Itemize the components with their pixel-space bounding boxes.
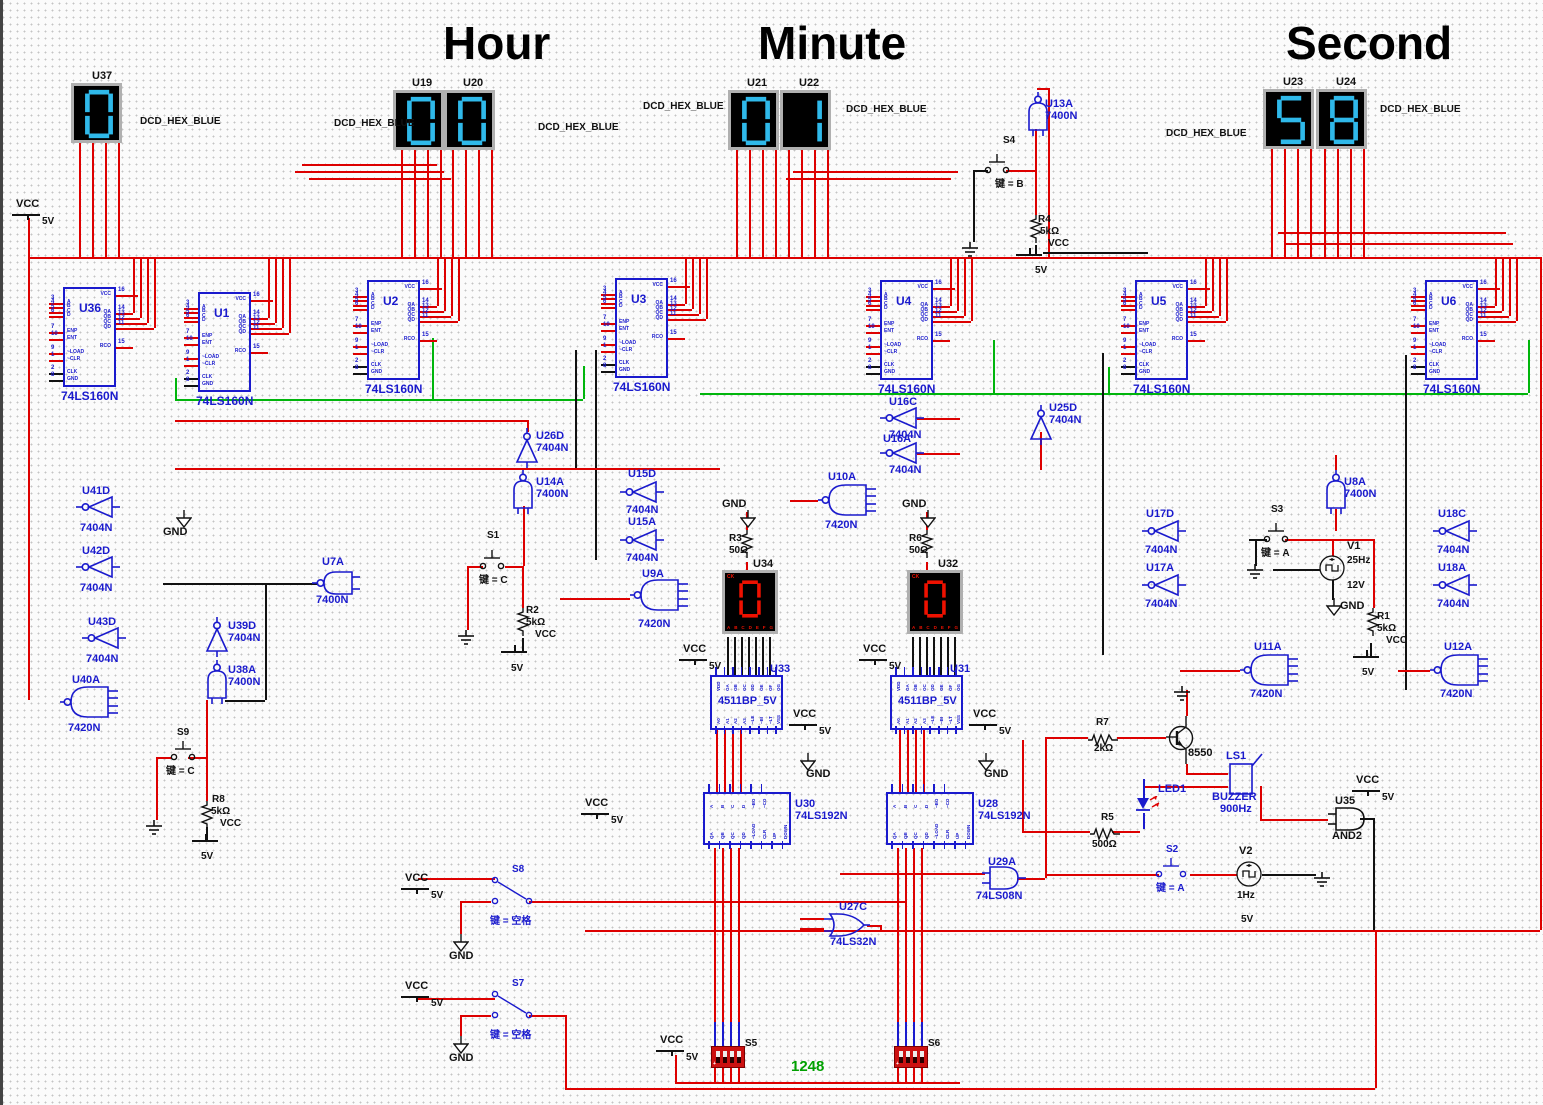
clock-source-V2[interactable] bbox=[1236, 861, 1262, 892]
gate-part-U7A: 7400N bbox=[316, 594, 348, 606]
wire bbox=[1324, 149, 1326, 257]
wire bbox=[1375, 930, 1377, 1088]
wire bbox=[912, 841, 914, 849]
wire bbox=[1373, 818, 1375, 930]
wire bbox=[727, 637, 729, 675]
wire bbox=[905, 848, 907, 1022]
resistor-label-R4: VCC bbox=[1048, 238, 1069, 249]
pin-number: 15 bbox=[1190, 332, 1197, 338]
wire bbox=[418, 998, 495, 1000]
wire bbox=[401, 150, 403, 257]
pin-label: ~CLR bbox=[619, 347, 632, 353]
pin-label: B bbox=[903, 805, 908, 808]
pin-label: QD bbox=[91, 324, 111, 330]
wire bbox=[265, 583, 267, 700]
wire bbox=[79, 143, 81, 257]
pin-label: ~LOAD bbox=[67, 349, 84, 355]
display-caption-3: DCD_HEX_BLUE bbox=[643, 101, 724, 112]
pin-label: GND bbox=[1139, 369, 1150, 375]
wire bbox=[950, 257, 952, 306]
pin-label: CLK bbox=[884, 362, 894, 368]
pin-number: 2 bbox=[868, 358, 871, 364]
resistor-label-R1: R1 bbox=[1377, 611, 1390, 622]
wire bbox=[741, 726, 743, 734]
wire bbox=[414, 150, 416, 257]
wire bbox=[251, 352, 268, 354]
wire bbox=[1335, 455, 1337, 470]
wire bbox=[416, 888, 418, 894]
pin-label: VCC bbox=[226, 296, 246, 302]
wire bbox=[902, 841, 904, 849]
wire bbox=[1367, 790, 1369, 796]
pin-label: GND bbox=[371, 369, 382, 375]
wire bbox=[775, 726, 777, 734]
pin-label: ENP bbox=[1429, 321, 1439, 327]
wire bbox=[984, 724, 986, 730]
wire bbox=[401, 996, 429, 998]
source-volt-V1: 12V bbox=[1347, 580, 1365, 591]
wire bbox=[915, 730, 917, 792]
resistor-label-R1: 5kΩ bbox=[1377, 623, 1396, 634]
wire bbox=[755, 637, 757, 675]
wire bbox=[762, 637, 764, 675]
wire bbox=[1350, 149, 1352, 257]
resistor-label-R8: R8 bbox=[212, 794, 225, 805]
chip-ref-U31: U31 bbox=[950, 663, 970, 675]
pin-label: GND bbox=[1429, 369, 1440, 375]
pin-label: RCO bbox=[1453, 336, 1473, 342]
gate-part-U25D: 7404N bbox=[1049, 414, 1081, 426]
gate-U11A[interactable] bbox=[1240, 653, 1298, 692]
wire bbox=[184, 321, 198, 323]
chip-part-U36: 74LS160N bbox=[61, 389, 118, 403]
gate-U41D[interactable] bbox=[76, 495, 120, 524]
wire bbox=[907, 730, 909, 792]
updown-counter-chip-U28[interactable] bbox=[886, 792, 974, 845]
gate-U38A[interactable] bbox=[205, 660, 229, 709]
wire bbox=[874, 659, 876, 665]
v5-label: 5V bbox=[819, 726, 831, 737]
gate-ref-U11A: U11A bbox=[1254, 641, 1282, 653]
earth-ground-symbol[interactable] bbox=[1245, 564, 1265, 585]
wire bbox=[944, 784, 946, 792]
wire bbox=[444, 257, 446, 311]
wire bbox=[1180, 670, 1240, 672]
wire bbox=[92, 143, 94, 257]
wire bbox=[904, 667, 906, 675]
gate-ref-U12A: U12A bbox=[1444, 641, 1472, 653]
gate-part-U26D: 7404N bbox=[536, 442, 568, 454]
resistor-label-R6: 50Ω bbox=[909, 545, 928, 556]
pin-number: 15 bbox=[935, 332, 942, 338]
wire bbox=[897, 1022, 899, 1046]
seven-segment-display-U23[interactable] bbox=[1263, 89, 1314, 149]
wire bbox=[730, 848, 732, 1022]
wire bbox=[12, 214, 40, 216]
pin-label: CLK bbox=[67, 369, 77, 375]
wire bbox=[1016, 254, 1042, 256]
pin-label: D bbox=[371, 305, 375, 311]
wire bbox=[437, 257, 439, 306]
wire bbox=[923, 730, 925, 792]
pin-label: OB bbox=[913, 684, 918, 691]
gate-part-U38A: 7400N bbox=[228, 676, 260, 688]
wire bbox=[940, 637, 942, 675]
pin-number: 2 bbox=[1123, 358, 1126, 364]
wire bbox=[923, 841, 925, 849]
pin-label: OB bbox=[733, 684, 738, 691]
pin-label: QC bbox=[730, 832, 735, 839]
wire bbox=[418, 878, 495, 880]
gate-U9A[interactable] bbox=[630, 578, 688, 617]
wire bbox=[789, 724, 817, 726]
wire bbox=[275, 257, 277, 323]
wire bbox=[116, 347, 133, 349]
gate-part-U41D: 7404N bbox=[80, 522, 112, 534]
pin-label: A3 bbox=[742, 718, 747, 724]
wire bbox=[1363, 149, 1365, 257]
seven-segment-display-U21[interactable] bbox=[728, 90, 779, 150]
switch-S7[interactable] bbox=[491, 990, 535, 1025]
vcc-symbol: VCC bbox=[1356, 774, 1379, 786]
wire bbox=[1188, 288, 1210, 290]
wire bbox=[933, 784, 935, 792]
wire bbox=[192, 840, 218, 842]
v5-label: 5V bbox=[1382, 792, 1394, 803]
resistor-label-R6: R6 bbox=[909, 533, 922, 544]
resistor-label-R8: 5kΩ bbox=[211, 806, 230, 817]
v5-label: 5V bbox=[686, 1052, 698, 1063]
gate-part-U8A: 7400N bbox=[1344, 488, 1376, 500]
vcc-symbol: VCC bbox=[793, 708, 816, 720]
pin-number: 8 bbox=[186, 377, 189, 383]
transistor-8550[interactable] bbox=[1166, 712, 1200, 771]
wire bbox=[929, 667, 931, 675]
wire bbox=[913, 1022, 915, 1046]
wire bbox=[1029, 248, 1031, 254]
gate-ref-U14A: U14A bbox=[536, 476, 564, 488]
display-ref-U23: U23 bbox=[1283, 76, 1303, 88]
wire bbox=[955, 726, 957, 734]
wire bbox=[1262, 874, 1316, 876]
gate-part-U39D: 7404N bbox=[228, 632, 260, 644]
switch-ref-S5: S5 bbox=[745, 1038, 757, 1049]
pin-label: ~LOAD bbox=[934, 824, 939, 839]
gate-ref-U15D: U15D bbox=[628, 468, 656, 480]
wire bbox=[749, 726, 751, 734]
pin-label: OD bbox=[930, 684, 935, 691]
gate-U40A[interactable] bbox=[60, 685, 118, 724]
wire bbox=[184, 344, 198, 346]
pin-label: OC bbox=[922, 684, 927, 691]
pin-label: CLK bbox=[1139, 362, 1149, 368]
pin-number: 8 bbox=[51, 372, 54, 378]
wire bbox=[740, 784, 742, 792]
wire bbox=[706, 257, 708, 319]
wire bbox=[460, 1015, 491, 1017]
wire bbox=[401, 888, 429, 890]
wire bbox=[1121, 309, 1135, 311]
wire bbox=[282, 257, 284, 328]
wire bbox=[522, 566, 524, 608]
pin-label: A0 bbox=[716, 718, 721, 724]
wire bbox=[1509, 257, 1511, 316]
chip-ref-U28: U28 bbox=[978, 798, 998, 810]
pin-label: ~BI bbox=[759, 717, 764, 724]
pin-number: 9 bbox=[868, 338, 871, 344]
wire bbox=[866, 332, 880, 334]
dip-switch-S5[interactable]: + bbox=[711, 1046, 745, 1068]
switch-key-S2: 键 = A bbox=[1156, 879, 1185, 894]
pin-number: 15 bbox=[1480, 332, 1487, 338]
clock-source-V1[interactable] bbox=[1319, 555, 1345, 586]
pin-number: 10 bbox=[1123, 324, 1130, 330]
wire bbox=[736, 150, 738, 257]
wire bbox=[353, 353, 367, 355]
wire bbox=[750, 841, 752, 849]
pin-label: A bbox=[892, 805, 897, 808]
pin-label: D bbox=[884, 305, 888, 311]
wire bbox=[788, 150, 790, 257]
wire bbox=[478, 150, 480, 257]
seven-segment-display-U37[interactable] bbox=[71, 83, 122, 143]
wire bbox=[921, 1022, 923, 1046]
pin-number: 7 bbox=[868, 317, 871, 323]
wire bbox=[679, 659, 707, 661]
earth-ground-symbol[interactable] bbox=[960, 242, 980, 263]
gate-ref-U8A: U8A bbox=[1344, 476, 1366, 488]
wire bbox=[1528, 340, 1530, 393]
wire bbox=[501, 651, 527, 653]
gate-U10A[interactable] bbox=[818, 483, 876, 522]
wire bbox=[116, 295, 138, 297]
pin-label: ENT bbox=[371, 328, 381, 334]
switch-key-S8: 键 = 空格 bbox=[490, 912, 531, 927]
pin-label: VCC bbox=[395, 284, 415, 290]
wire bbox=[964, 257, 966, 316]
switch-ref-S6: S6 bbox=[928, 1038, 940, 1049]
pin-label: B bbox=[720, 805, 725, 808]
wire bbox=[912, 784, 914, 792]
wire bbox=[762, 150, 764, 257]
pin-label: ENP bbox=[884, 321, 894, 327]
pin-label: VDD bbox=[896, 681, 901, 691]
seven-segment-display-U32[interactable]: CKABCDEFG bbox=[907, 570, 963, 634]
pin-label: CLR bbox=[945, 830, 950, 839]
v5-label: 5V bbox=[709, 661, 721, 672]
wire bbox=[891, 784, 893, 792]
wire bbox=[933, 340, 950, 342]
wire bbox=[1352, 790, 1380, 792]
wire bbox=[782, 841, 784, 849]
pin-label: QB bbox=[720, 832, 725, 839]
wire bbox=[514, 645, 516, 651]
wire bbox=[1121, 373, 1135, 375]
pin-number: 7 bbox=[186, 329, 189, 335]
wire bbox=[251, 300, 273, 302]
gate-part-U43D: 7404N bbox=[86, 653, 118, 665]
gate-ref-U17A: U17A bbox=[1146, 562, 1174, 574]
pin-number: 1 bbox=[51, 352, 54, 358]
chip-part-U1: 74LS160N bbox=[196, 394, 253, 408]
wire bbox=[416, 996, 418, 1002]
seven-segment-display-U20[interactable] bbox=[444, 90, 495, 150]
display-caption-1: DCD_HEX_BLUE bbox=[334, 118, 415, 129]
gate-ref-U18A: U18A bbox=[1438, 562, 1466, 574]
pin-number: 2 bbox=[51, 365, 54, 371]
pin-label: ~CLR bbox=[1429, 349, 1442, 355]
wire bbox=[451, 257, 453, 316]
vcc-symbol: VCC bbox=[863, 643, 886, 655]
wire bbox=[738, 1066, 740, 1082]
wire bbox=[452, 150, 454, 257]
pin-label: ~BO bbox=[751, 799, 756, 808]
wire bbox=[420, 288, 442, 290]
wire bbox=[730, 1066, 732, 1082]
wire bbox=[601, 307, 615, 309]
wire bbox=[790, 500, 818, 502]
pin-number: 10 bbox=[603, 322, 610, 328]
pin-label: GND bbox=[67, 376, 78, 382]
pin-label: ENP bbox=[202, 333, 212, 339]
wire bbox=[814, 150, 816, 257]
wire bbox=[1260, 819, 1328, 821]
pin-number: 8 bbox=[355, 365, 358, 371]
display-caption-5: DCD_HEX_BLUE bbox=[1166, 128, 1247, 139]
pin-label: A0 bbox=[896, 718, 901, 724]
earth-ground-symbol[interactable] bbox=[1172, 686, 1192, 707]
pin-number: 11 bbox=[935, 313, 941, 319]
pin-number: 2 bbox=[1413, 358, 1416, 364]
pin-label: CLK bbox=[1429, 362, 1439, 368]
resistor-label-R7: 2kΩ bbox=[1094, 743, 1113, 754]
gnd-symbol[interactable] bbox=[740, 510, 756, 533]
wire bbox=[1219, 257, 1221, 316]
pin-label: QA bbox=[892, 832, 897, 839]
gnd-symbol[interactable] bbox=[920, 510, 936, 533]
earth-ground-symbol[interactable] bbox=[144, 820, 164, 841]
gate-U12A[interactable] bbox=[1430, 653, 1488, 692]
pin-label: OE bbox=[939, 684, 944, 691]
wire bbox=[891, 841, 893, 849]
pin-label: VDD bbox=[716, 681, 721, 691]
wire bbox=[1337, 149, 1339, 257]
switch-key-S9: 键 = C bbox=[166, 762, 195, 777]
led-symbol[interactable] bbox=[1133, 796, 1165, 823]
gnd-label: GND bbox=[902, 498, 926, 510]
gate-U39D[interactable] bbox=[205, 617, 229, 662]
seven-segment-display-U34[interactable]: CKABCDEFG bbox=[722, 570, 778, 634]
gate-U43D[interactable] bbox=[82, 626, 126, 655]
wire bbox=[741, 667, 743, 675]
wire bbox=[1370, 643, 1372, 656]
gate-U14A[interactable] bbox=[511, 470, 535, 519]
wire bbox=[49, 316, 63, 318]
chip-ref-U33: U33 bbox=[770, 663, 790, 675]
wire bbox=[1188, 321, 1226, 323]
wire bbox=[866, 309, 880, 311]
wire bbox=[938, 667, 940, 675]
pin-label: D bbox=[202, 317, 206, 323]
gate-part-U17A: 7404N bbox=[1145, 598, 1177, 610]
resistor-label-R4: R4 bbox=[1038, 214, 1051, 225]
pin-number: 6 bbox=[1123, 301, 1126, 307]
pin-label: QD bbox=[1453, 317, 1473, 323]
gate-ref-U15A: U15A bbox=[628, 516, 656, 528]
wire bbox=[460, 901, 462, 934]
earth-ground-symbol[interactable] bbox=[1312, 872, 1332, 893]
wire bbox=[933, 637, 935, 675]
chip-ref-U30: U30 bbox=[795, 798, 815, 810]
wire bbox=[1043, 252, 1148, 254]
wire bbox=[913, 848, 915, 1022]
second-title: Second bbox=[1286, 16, 1452, 70]
resistor-label-R2: R2 bbox=[526, 605, 539, 616]
wire bbox=[206, 757, 208, 801]
wire bbox=[921, 726, 923, 734]
seven-segment-display-U22[interactable] bbox=[780, 90, 831, 150]
pin-label: A2 bbox=[733, 718, 738, 724]
wire bbox=[1045, 737, 1088, 739]
pin-label: D bbox=[924, 805, 929, 808]
pin-label: D bbox=[619, 303, 623, 309]
wire bbox=[491, 150, 493, 257]
wire bbox=[800, 928, 824, 930]
earth-ground-symbol[interactable] bbox=[456, 630, 476, 651]
pin-label: VCC bbox=[91, 291, 111, 297]
gate-U42D[interactable] bbox=[76, 555, 120, 584]
wire bbox=[1117, 737, 1166, 739]
wire bbox=[1186, 773, 1228, 775]
wire bbox=[944, 841, 946, 849]
wire bbox=[595, 350, 597, 560]
v5-label: 5V bbox=[431, 998, 443, 1009]
led-label: LED1 bbox=[1158, 783, 1186, 795]
chip-part-U28: 74LS192N bbox=[978, 810, 1031, 822]
wire bbox=[947, 667, 949, 675]
gnd-label: GND bbox=[984, 768, 1008, 780]
wire bbox=[1478, 321, 1516, 323]
gate-ref-U25D: U25D bbox=[1049, 402, 1077, 414]
wire bbox=[1190, 874, 1237, 876]
wire bbox=[225, 700, 265, 702]
wire bbox=[105, 143, 107, 257]
wire bbox=[827, 150, 829, 257]
wire bbox=[565, 1088, 1375, 1090]
wire bbox=[734, 637, 736, 675]
wire bbox=[420, 340, 437, 342]
wire bbox=[866, 353, 880, 355]
seven-segment-display-U24[interactable] bbox=[1316, 89, 1367, 149]
pin-label: D bbox=[1139, 305, 1143, 311]
switch-key-S1: 键 = C bbox=[479, 571, 508, 586]
gate-part-U10A: 7420N bbox=[825, 519, 857, 531]
pin-label: RCO bbox=[1163, 336, 1183, 342]
updown-counter-chip-U30[interactable] bbox=[703, 792, 791, 845]
resistor-label-R8: VCC bbox=[220, 818, 241, 829]
v5-label: 5V bbox=[1362, 667, 1374, 678]
dip-switch-S6[interactable]: + bbox=[894, 1046, 928, 1068]
wire bbox=[1045, 874, 1159, 876]
buzzer-freq: 900Hz bbox=[1220, 803, 1252, 815]
chip-part-U3: 74LS160N bbox=[613, 380, 670, 394]
switch-S8[interactable] bbox=[491, 876, 535, 911]
wire bbox=[921, 667, 923, 675]
wire bbox=[750, 784, 752, 792]
resistor-label-R5: R5 bbox=[1101, 812, 1114, 823]
chip-part-U31: 4511BP_5V bbox=[898, 695, 957, 707]
gate-part-U15A: 7404N bbox=[626, 552, 658, 564]
